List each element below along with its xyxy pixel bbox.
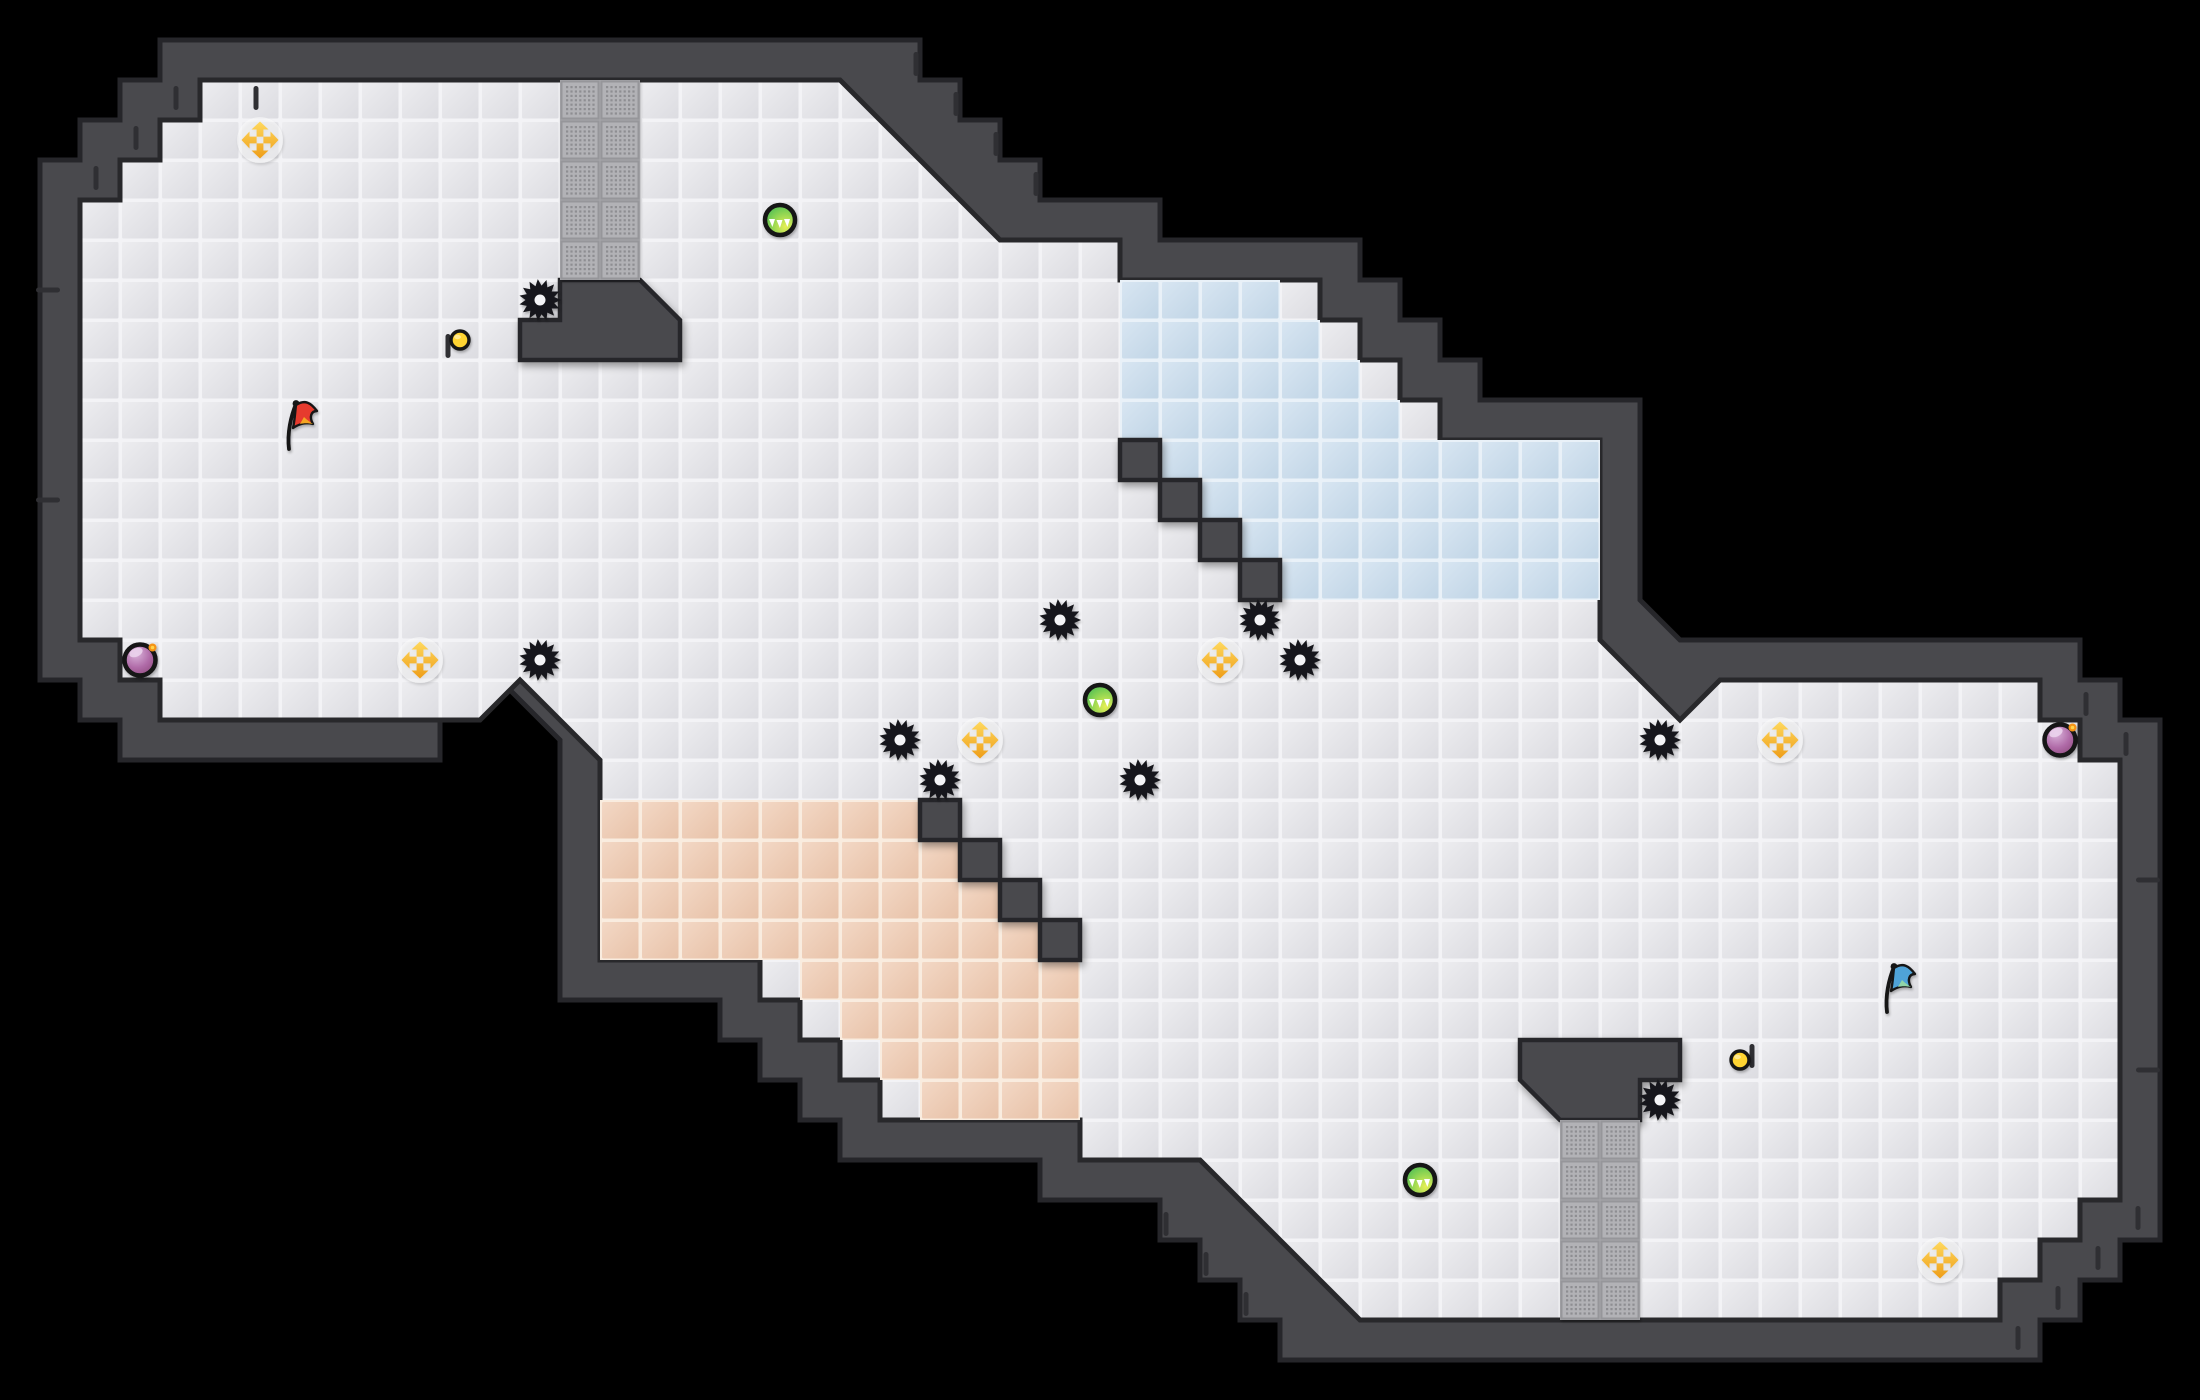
powerup-icon — [1405, 1165, 1435, 1195]
bottom-gate-icon — [1560, 1120, 1640, 1320]
coin-icon — [1731, 1051, 1749, 1069]
top-gate-icon — [560, 80, 640, 280]
powerup-icon — [765, 205, 795, 235]
bomb-icon — [2045, 724, 2077, 756]
boost-icon — [1757, 717, 1803, 763]
powerup-icon — [1085, 685, 1115, 715]
game-map — [0, 0, 2200, 1400]
boost-icon — [397, 637, 443, 683]
bomb-icon — [125, 644, 157, 676]
boost-icon — [957, 717, 1003, 763]
boost-icon — [1197, 637, 1243, 683]
boost-icon — [1917, 1237, 1963, 1283]
game-map-canvas[interactable] — [0, 0, 2200, 1400]
boost-icon — [237, 117, 283, 163]
coin-icon — [451, 331, 469, 349]
